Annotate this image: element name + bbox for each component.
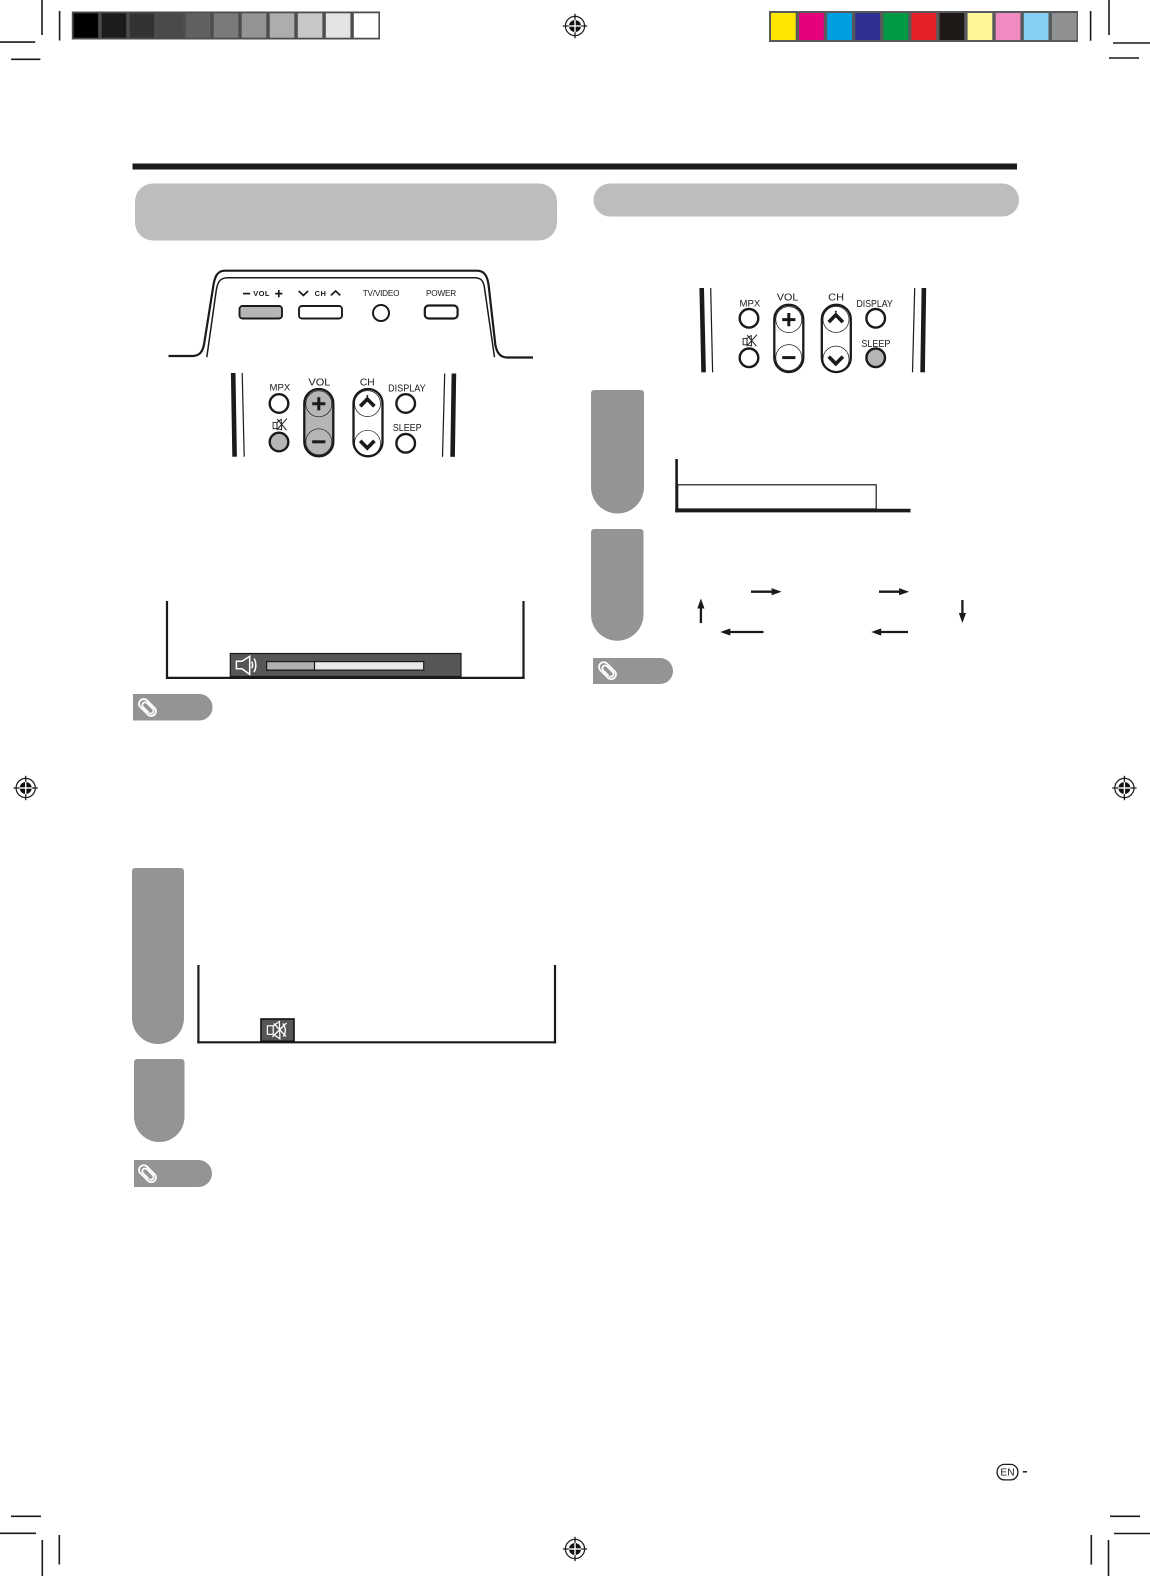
svg-text:EN: EN: [1000, 1468, 1014, 1479]
svg-text:VOL: VOL: [777, 291, 799, 303]
svg-text:VOL: VOL: [253, 289, 270, 298]
svg-text:CH: CH: [315, 289, 327, 298]
svg-text:SLEEP: SLEEP: [393, 422, 422, 434]
svg-text:MPX: MPX: [740, 298, 761, 309]
svg-text:POWER: POWER: [426, 289, 456, 298]
svg-text:VOL: VOL: [308, 377, 330, 389]
svg-text:TV/VIDEO: TV/VIDEO: [363, 289, 400, 298]
svg-text:CH: CH: [360, 377, 375, 389]
svg-text:MPX: MPX: [270, 383, 291, 394]
svg-text:CH: CH: [828, 291, 844, 303]
svg-text:DISPLAY: DISPLAY: [388, 382, 426, 394]
